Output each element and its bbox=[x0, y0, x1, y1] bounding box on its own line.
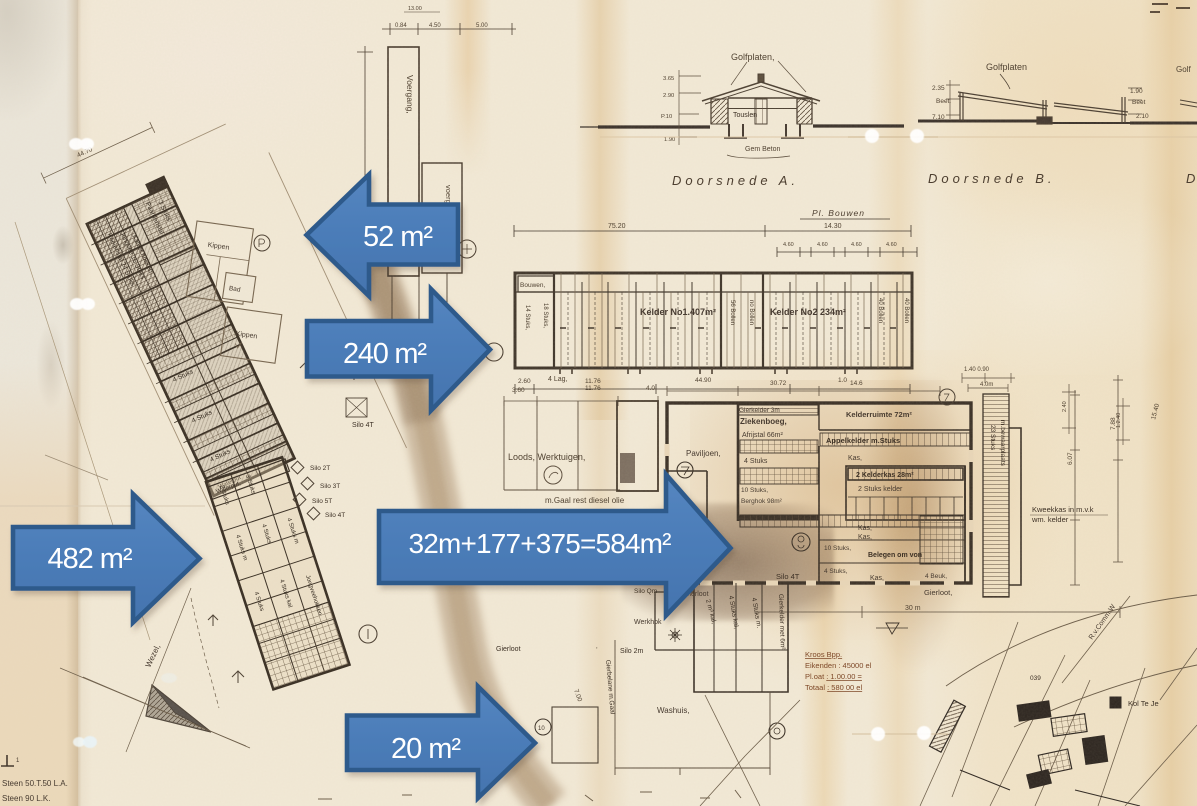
svg-text:240 m²: 240 m² bbox=[343, 338, 427, 370]
svg-text:52 m²: 52 m² bbox=[363, 221, 433, 253]
svg-text:20 m²: 20 m² bbox=[391, 733, 461, 765]
svg-text:32m+177+375=584m²: 32m+177+375=584m² bbox=[409, 528, 672, 559]
svg-text:482 m²: 482 m² bbox=[48, 543, 133, 575]
